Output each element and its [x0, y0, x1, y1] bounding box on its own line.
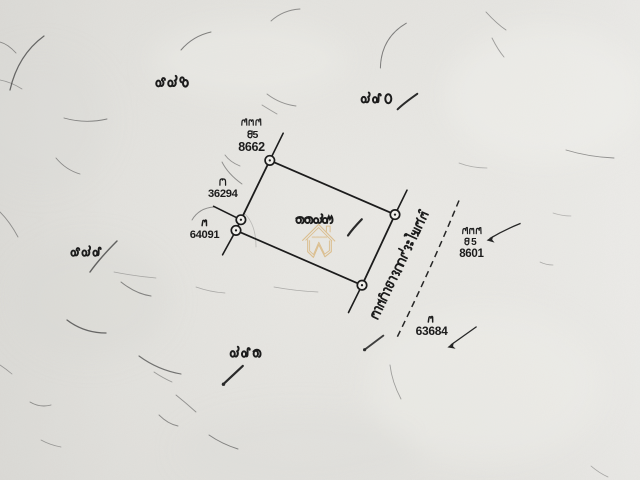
svg-text:5: 5	[253, 129, 259, 141]
svg-text:5: 5	[471, 237, 477, 248]
svg-text:8601: 8601	[459, 248, 484, 260]
svg-text:36294: 36294	[208, 188, 239, 200]
svg-text:8662: 8662	[238, 140, 265, 154]
svg-text:64091: 64091	[190, 229, 220, 241]
svg-text:63684: 63684	[416, 324, 448, 338]
